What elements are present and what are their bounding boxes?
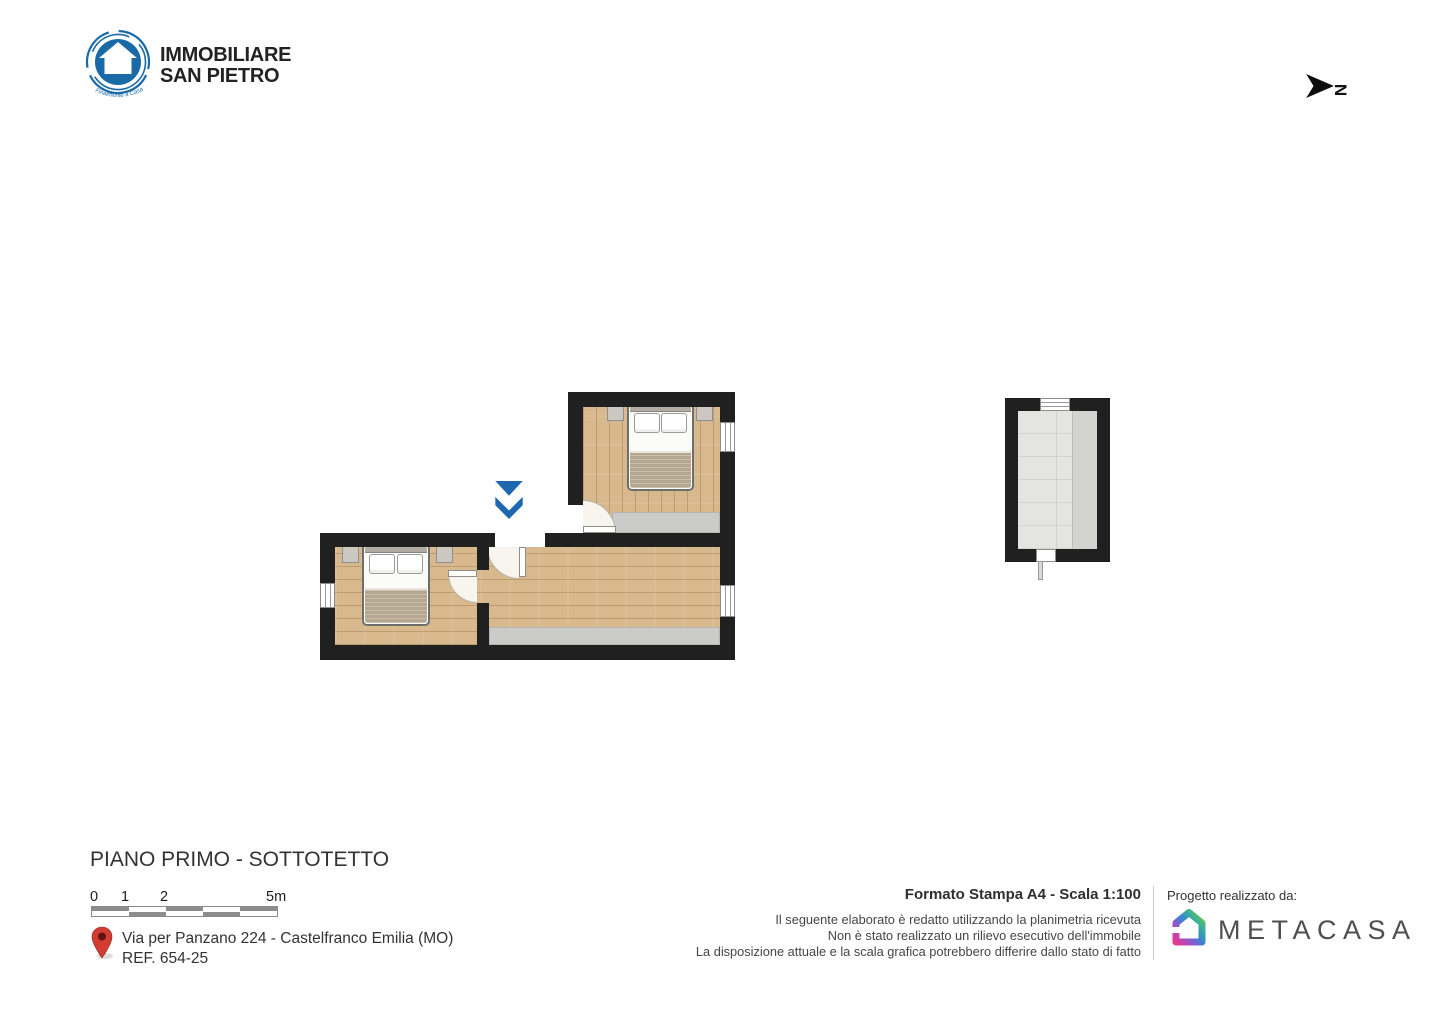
scale-label: 2 xyxy=(160,889,168,905)
window xyxy=(720,422,735,452)
pillow xyxy=(397,554,423,574)
wall xyxy=(1005,398,1018,562)
wall xyxy=(568,392,735,407)
scale-label: 1 xyxy=(121,889,129,905)
metacasa-house-icon xyxy=(1167,906,1211,955)
disclaimer-line: Il seguente elaborato è redatto utilizza… xyxy=(581,912,1141,928)
scale-bar-row xyxy=(92,907,277,911)
wall xyxy=(1097,398,1110,562)
wall xyxy=(320,645,735,660)
entrance-arrow-icon xyxy=(494,480,524,525)
partition-wall xyxy=(477,603,489,645)
bed-headboard xyxy=(365,547,427,553)
scale-bar-row xyxy=(92,911,277,916)
bed-blanket xyxy=(630,451,691,488)
door-leaf xyxy=(1038,561,1043,580)
wall xyxy=(1005,549,1110,562)
scale-label: 5m xyxy=(266,889,286,905)
partition-wall xyxy=(477,547,489,570)
credit-label: Progetto realizzato da: xyxy=(1167,888,1297,903)
print-info: Formato Stampa A4 - Scala 1:100 Il segue… xyxy=(581,886,1141,959)
scale-label: 0 xyxy=(90,889,98,905)
low-height-area xyxy=(1072,411,1097,549)
double-bed xyxy=(627,403,694,491)
wall xyxy=(545,533,735,547)
nightstand xyxy=(342,546,359,563)
door-leaf xyxy=(583,526,616,533)
divider xyxy=(1153,886,1154,960)
pillow xyxy=(634,413,660,433)
window xyxy=(720,585,735,617)
disclaimer-line: Non è stato realizzato un rilievo esecut… xyxy=(581,928,1141,944)
property-address: Via per Panzano 224 - Castelfranco Emili… xyxy=(122,929,453,969)
bed-blanket xyxy=(365,588,427,623)
page-title: PIANO PRIMO - SOTTOTETTO xyxy=(90,848,389,872)
wall xyxy=(320,533,495,547)
address-line: Via per Panzano 224 - Castelfranco Emili… xyxy=(122,929,453,949)
metacasa-brand-name: METACASA xyxy=(1218,915,1417,946)
entrance-door-leaf xyxy=(519,547,526,577)
low-height-area xyxy=(612,512,720,533)
location-pin-icon xyxy=(90,926,114,965)
nightstand xyxy=(436,546,453,563)
scale-bar xyxy=(91,906,278,917)
wall xyxy=(568,392,583,505)
pillow xyxy=(661,413,687,433)
double-bed xyxy=(362,544,430,626)
floorplan-page: Finalmente a Casa IMMOBILIARE SAN PIETRO… xyxy=(0,0,1440,1018)
door-leaf xyxy=(448,570,477,577)
pillow xyxy=(369,554,395,574)
print-format: Formato Stampa A4 - Scala 1:100 xyxy=(581,886,1141,903)
reference-number: REF. 654-25 xyxy=(122,949,453,969)
low-height-area xyxy=(489,627,720,645)
window xyxy=(1040,398,1070,411)
window xyxy=(320,583,335,608)
disclaimer-line: La disposizione attuale e la scala grafi… xyxy=(581,944,1141,960)
